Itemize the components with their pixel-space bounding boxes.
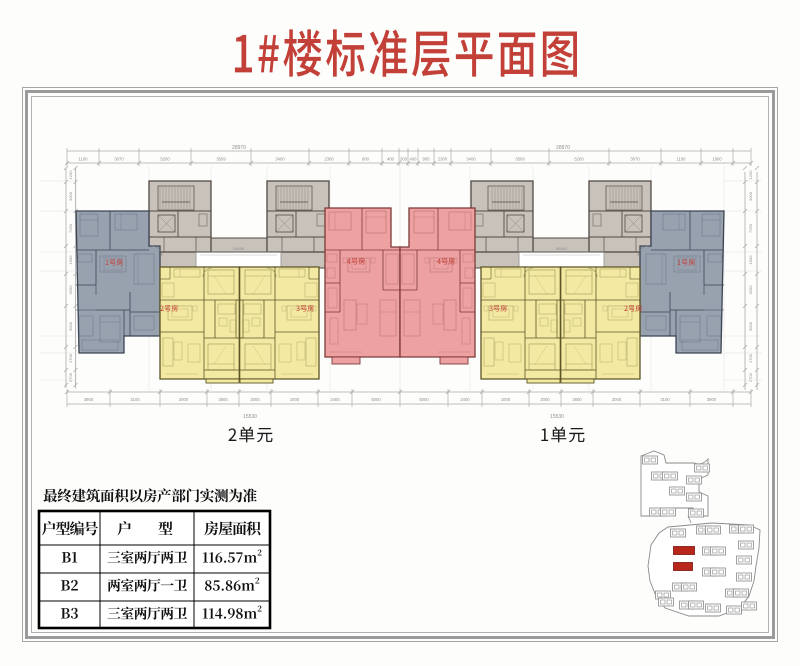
svg-text:28970: 28970: [232, 145, 246, 151]
svg-text:3800: 3800: [218, 397, 228, 402]
svg-text:3000: 3000: [68, 191, 73, 201]
svg-text:7250: 7250: [68, 223, 73, 233]
svg-text:1200: 1200: [748, 170, 753, 180]
svg-text:3000: 3000: [748, 321, 753, 331]
svg-text:1000: 1000: [501, 397, 511, 402]
svg-text:3509: 3509: [216, 157, 226, 162]
svg-text:1700: 1700: [68, 353, 73, 363]
svg-text:3400: 3400: [275, 157, 285, 162]
svg-text:15530: 15530: [550, 414, 564, 420]
svg-text:2000: 2000: [612, 397, 622, 402]
svg-text:1100: 1100: [78, 157, 88, 162]
svg-text:3500: 3500: [68, 285, 73, 295]
svg-text:29496: 29496: [555, 246, 567, 251]
svg-text:3070: 3070: [114, 157, 124, 162]
svg-text:5200: 5200: [574, 157, 584, 162]
svg-text:5000: 5000: [371, 397, 381, 402]
svg-text:2000: 2000: [250, 397, 260, 402]
svg-text:5200: 5200: [160, 157, 170, 162]
svg-text:2400: 2400: [460, 397, 470, 402]
svg-text:2000: 2000: [179, 397, 189, 402]
svg-text:900: 900: [423, 157, 431, 162]
svg-text:3400: 3400: [466, 157, 476, 162]
svg-text:3800: 3800: [572, 397, 582, 402]
svg-text:2700: 2700: [748, 372, 753, 382]
svg-text:15530: 15530: [243, 414, 257, 420]
svg-text:3100: 3100: [660, 397, 670, 402]
svg-text:3000: 3000: [68, 321, 73, 331]
svg-text:3900: 3900: [707, 397, 717, 402]
svg-text:300: 300: [400, 157, 408, 162]
svg-text:3100: 3100: [130, 397, 140, 402]
svg-text:3000: 3000: [748, 191, 753, 201]
svg-text:1700: 1700: [748, 353, 753, 363]
svg-text:2300: 2300: [438, 157, 448, 162]
svg-text:1100: 1100: [676, 157, 686, 162]
svg-text:900: 900: [362, 157, 370, 162]
svg-text:400: 400: [387, 157, 395, 162]
svg-text:400: 400: [410, 157, 418, 162]
svg-text:2000: 2000: [540, 397, 550, 402]
svg-text:28970: 28970: [556, 145, 570, 151]
svg-text:1000: 1000: [290, 397, 300, 402]
svg-text:1900: 1900: [68, 255, 73, 265]
svg-text:2700: 2700: [68, 372, 73, 382]
svg-text:29496: 29496: [233, 246, 245, 251]
svg-text:2400: 2400: [330, 397, 340, 402]
svg-text:3070: 3070: [630, 157, 640, 162]
svg-text:7250: 7250: [748, 223, 753, 233]
svg-text:2300: 2300: [324, 157, 334, 162]
svg-text:3500: 3500: [748, 285, 753, 295]
svg-text:5000: 5000: [419, 397, 429, 402]
svg-text:1200: 1200: [68, 170, 73, 180]
svg-text:1800: 1800: [712, 157, 722, 162]
svg-text:3900: 3900: [84, 397, 94, 402]
svg-text:3509: 3509: [515, 157, 525, 162]
svg-text:1900: 1900: [748, 255, 753, 265]
